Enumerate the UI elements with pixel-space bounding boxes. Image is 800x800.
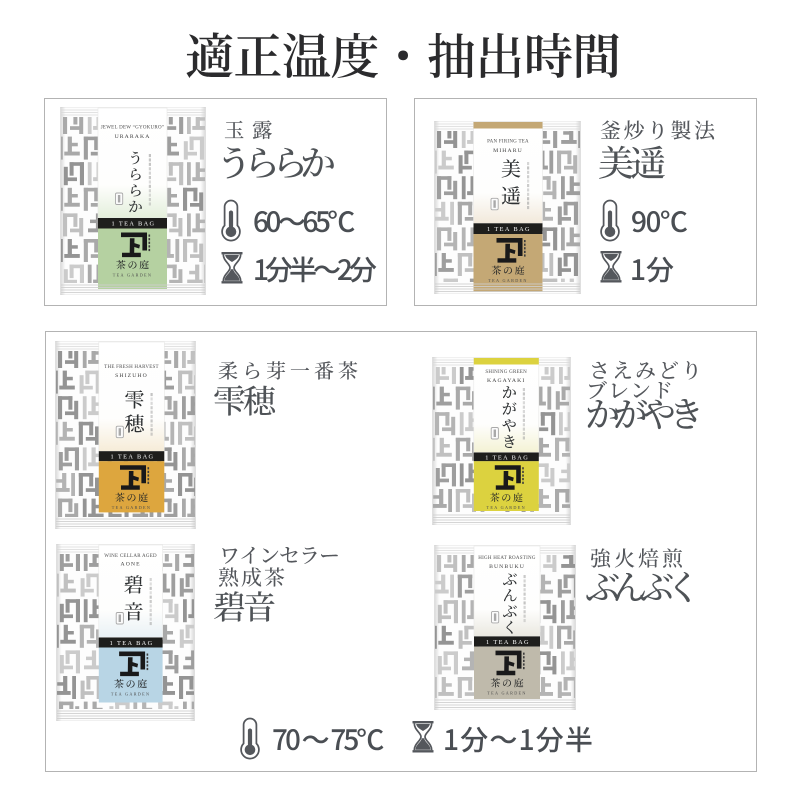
- svg-text:PAN FIRING TEA: PAN FIRING TEA: [487, 140, 529, 145]
- svg-text:KAGAYAKI: KAGAYAKI: [487, 378, 525, 384]
- svg-text:1 TEA BAG: 1 TEA BAG: [485, 454, 529, 461]
- svg-text:JEWEL DEW “GYOKURO”: JEWEL DEW “GYOKURO”: [101, 125, 165, 131]
- svg-text:TEA GARDEN: TEA GARDEN: [486, 505, 525, 510]
- svg-text:THE FRESH HARVEST: THE FRESH HARVEST: [104, 365, 159, 370]
- svg-text:TEA GARDEN: TEA GARDEN: [113, 273, 152, 278]
- svg-text:TEA GARDEN: TEA GARDEN: [111, 692, 150, 697]
- svg-text:URARAKA: URARAKA: [115, 134, 151, 140]
- svg-text:TEA GARDEN: TEA GARDEN: [487, 691, 526, 696]
- svg-text:1 TEA BAG: 1 TEA BAG: [486, 639, 530, 646]
- svg-text:SHINING GREEN: SHINING GREEN: [485, 370, 527, 375]
- svg-text:BUNBUKU: BUNBUKU: [489, 564, 525, 570]
- svg-text:SHIZUHO: SHIZUHO: [115, 373, 148, 379]
- svg-text:1 TEA BAG: 1 TEA BAG: [110, 640, 154, 647]
- svg-text:TEA GARDEN: TEA GARDEN: [488, 278, 527, 283]
- svg-text:1 TEA BAG: 1 TEA BAG: [487, 226, 531, 233]
- svg-text:1 TEA BAG: 1 TEA BAG: [112, 221, 156, 228]
- svg-text:MIHARU: MIHARU: [493, 148, 523, 154]
- svg-text:TEA GARDEN: TEA GARDEN: [111, 505, 150, 510]
- svg-text:1 TEA BAG: 1 TEA BAG: [110, 454, 154, 461]
- svg-text:HIGH HEAT ROASTING: HIGH HEAT ROASTING: [478, 556, 536, 561]
- svg-text:AONE: AONE: [120, 562, 140, 568]
- svg-text:WINE CELLAR AGED: WINE CELLAR AGED: [104, 554, 157, 559]
